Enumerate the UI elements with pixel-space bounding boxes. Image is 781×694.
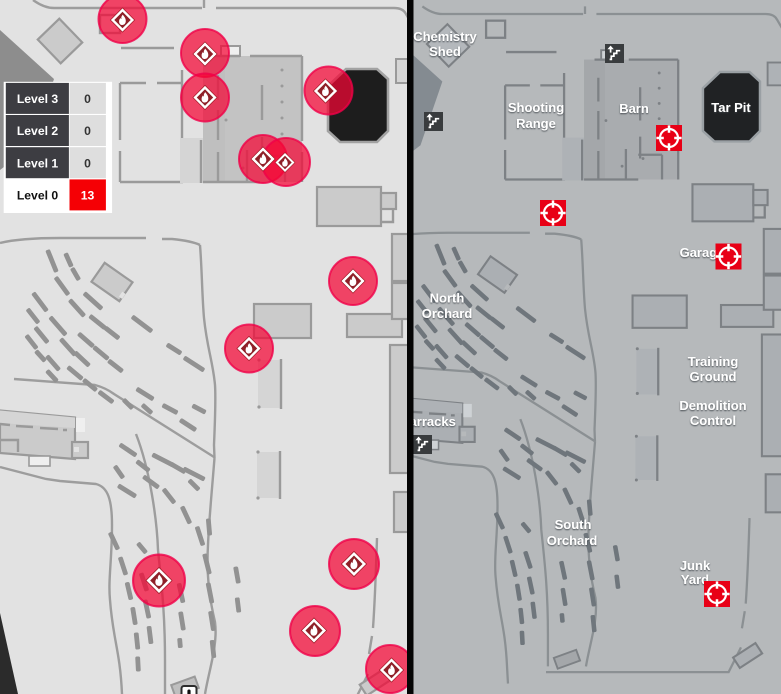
svg-text:Shed: Shed: [429, 44, 461, 59]
svg-text:Chemistry: Chemistry: [413, 29, 477, 44]
svg-text:Shooting: Shooting: [508, 100, 564, 115]
svg-text:Training: Training: [688, 354, 739, 369]
svg-text:Ground: Ground: [690, 369, 737, 384]
svg-text:Junk: Junk: [680, 558, 711, 573]
svg-text:Control: Control: [690, 413, 736, 428]
svg-text:0: 0: [84, 124, 91, 138]
svg-text:Level 2: Level 2: [17, 124, 59, 138]
svg-text:Orchard: Orchard: [422, 306, 473, 321]
svg-text:Level 1: Level 1: [17, 156, 59, 170]
svg-text:13: 13: [81, 189, 95, 203]
svg-text:Tar Pit: Tar Pit: [711, 100, 751, 115]
svg-text:0: 0: [84, 92, 91, 106]
svg-text:South: South: [555, 517, 592, 532]
svg-text:Barn: Barn: [619, 101, 649, 116]
svg-text:North: North: [430, 291, 465, 306]
svg-text:Level 0: Level 0: [17, 189, 59, 203]
svg-text:Demolition: Demolition: [679, 398, 746, 413]
svg-text:Level 3: Level 3: [17, 92, 59, 106]
svg-text:Orchard: Orchard: [547, 533, 598, 548]
svg-text:Range: Range: [516, 116, 556, 131]
svg-text:0: 0: [84, 156, 91, 170]
